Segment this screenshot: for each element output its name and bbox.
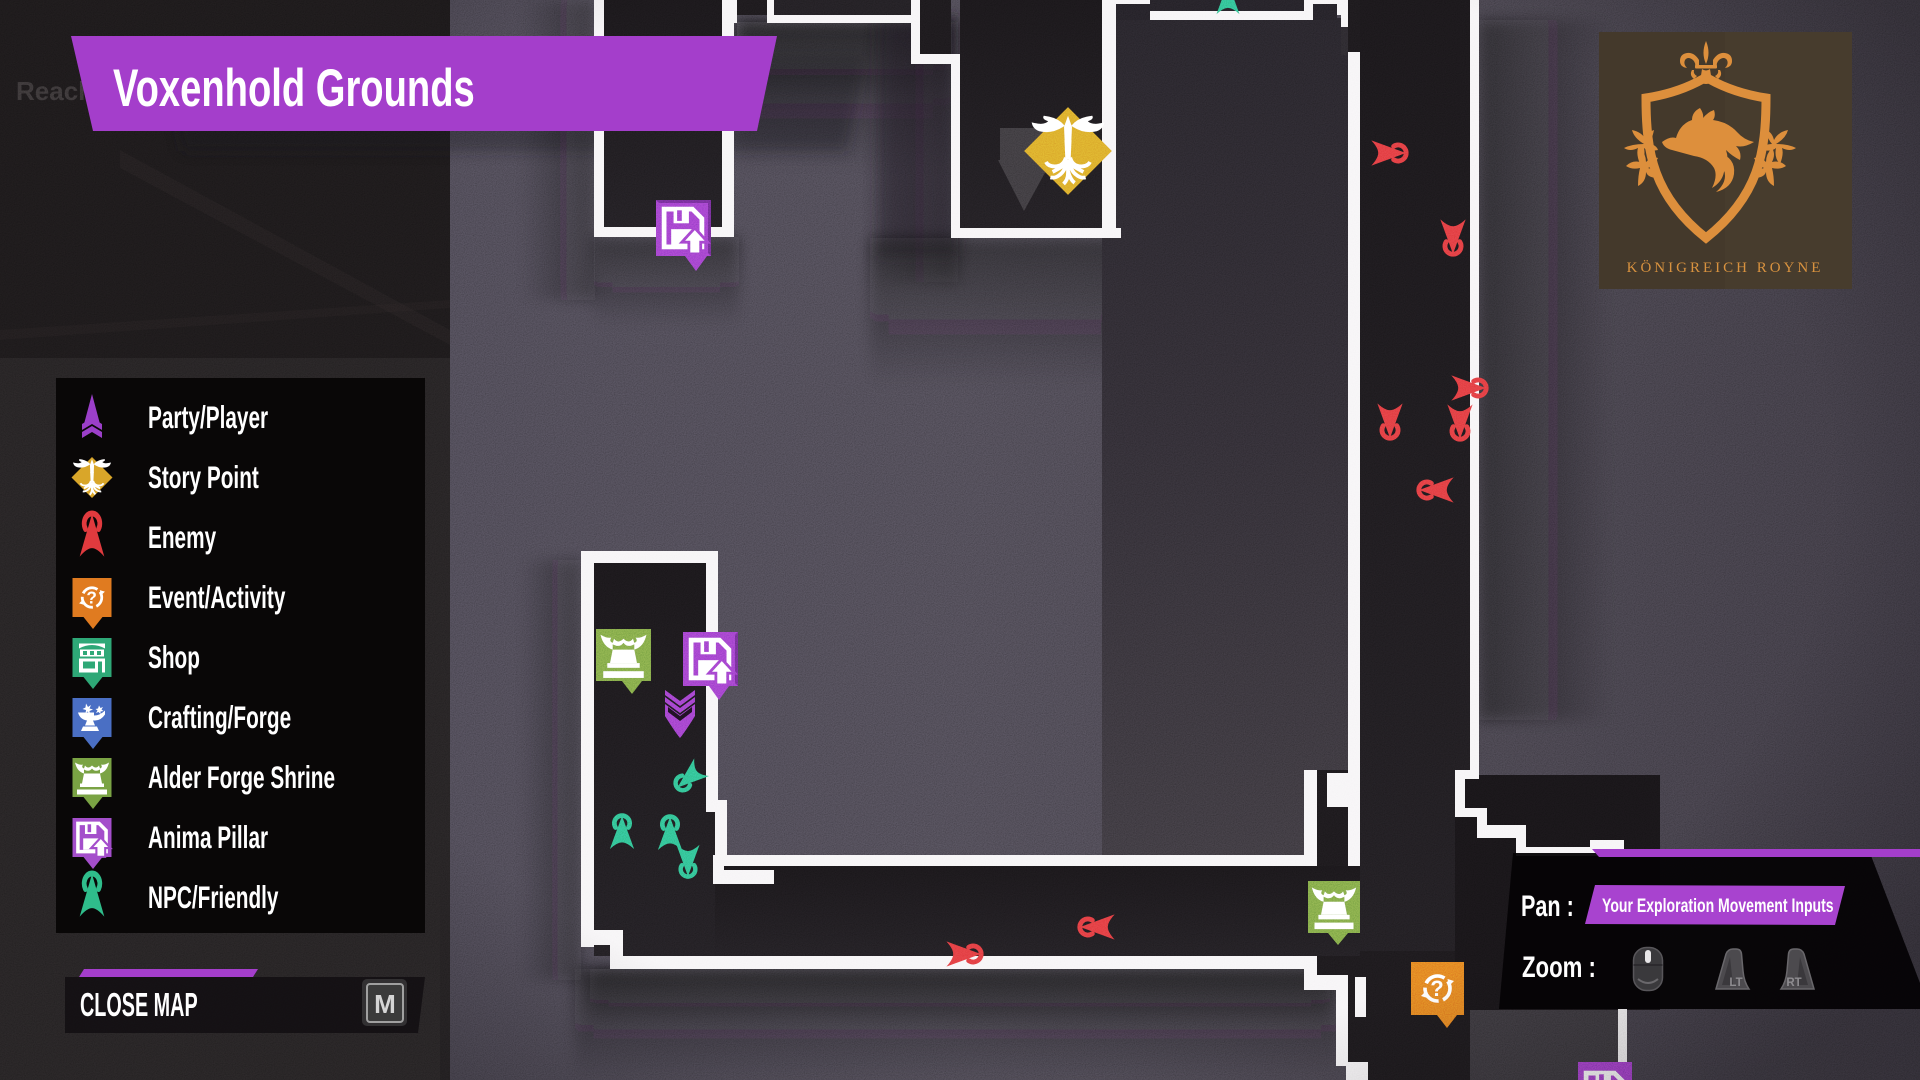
svg-text:Anima Pillar: Anima Pillar [148,820,268,855]
svg-text:LT: LT [1729,977,1742,989]
svg-text:Voxenhold Grounds: Voxenhold Grounds [113,58,475,118]
svg-text:Your Exploration Movement Inpu: Your Exploration Movement Inputs [1602,895,1834,917]
svg-text:Alder Forge Shrine: Alder Forge Shrine [148,760,335,795]
svg-text:Event/Activity: Event/Activity [148,580,286,615]
svg-text:Story Point: Story Point [148,460,259,495]
svg-text:Pan :: Pan : [1521,888,1574,922]
svg-text:Shop: Shop [148,640,200,675]
svg-text:Crafting/Forge: Crafting/Forge [148,700,291,735]
svg-text:Party/Player: Party/Player [148,400,268,435]
svg-text:RT: RT [1786,977,1801,989]
svg-text:NPC/Friendly: NPC/Friendly [148,880,279,915]
svg-text:KÖNIGREICH ROYNE: KÖNIGREICH ROYNE [1627,259,1824,276]
svg-text:Enemy: Enemy [148,520,216,555]
svg-text:M: M [374,989,396,1019]
svg-text:Zoom :: Zoom : [1522,950,1596,984]
svg-text:CLOSE MAP: CLOSE MAP [80,986,198,1024]
